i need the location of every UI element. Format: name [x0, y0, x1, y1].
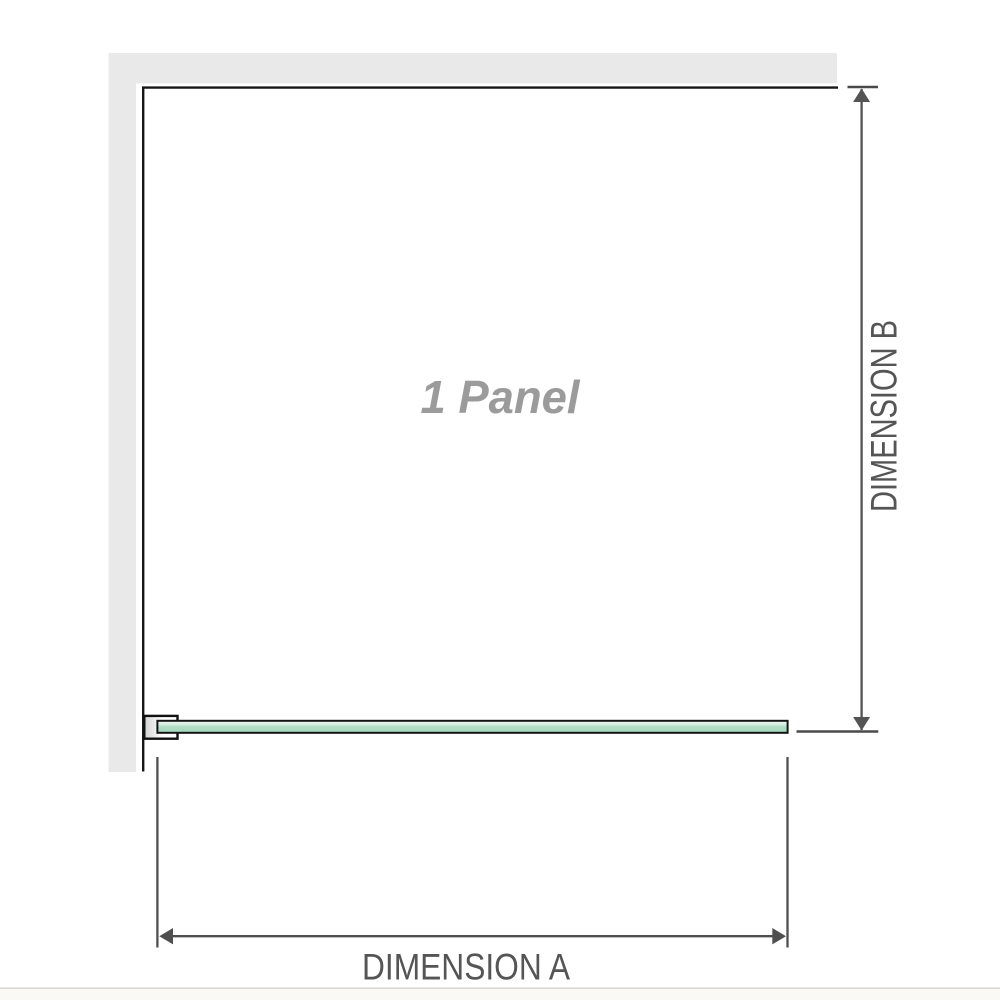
- svg-text:DIMENSION B: DIMENSION B: [864, 320, 905, 512]
- svg-text:DIMENSION A: DIMENSION A: [362, 947, 570, 988]
- svg-text:1 Panel: 1 Panel: [421, 371, 581, 423]
